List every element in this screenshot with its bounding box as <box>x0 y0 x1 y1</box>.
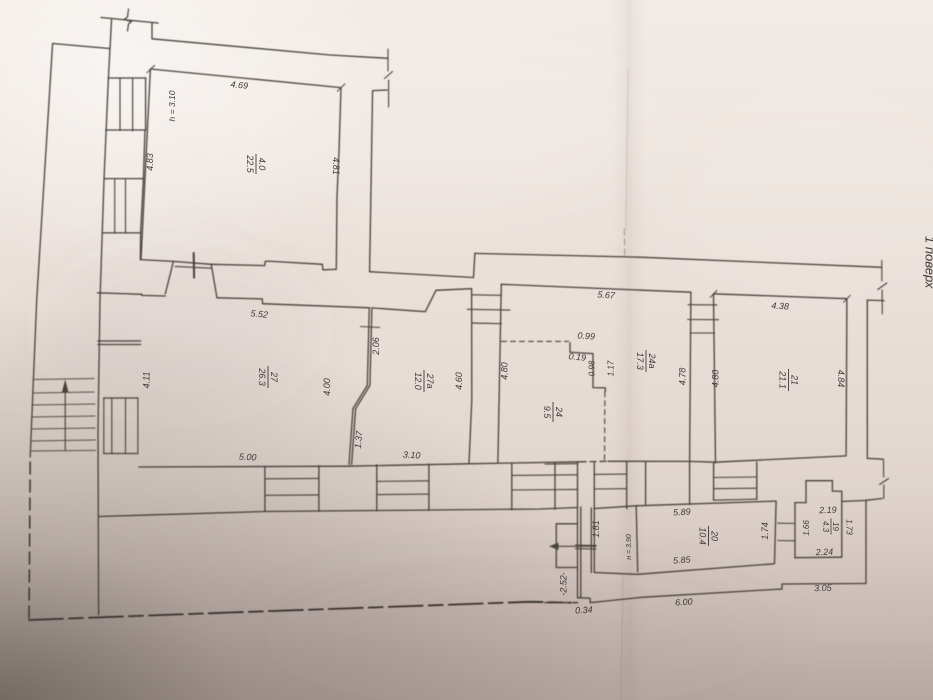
svg-text:6.00: 6.00 <box>675 596 693 607</box>
svg-text:1 поверх: 1 поверх <box>923 236 933 289</box>
svg-text:22.5: 22.5 <box>245 154 255 174</box>
svg-text:2.24: 2.24 <box>814 547 833 558</box>
svg-text:5.67: 5.67 <box>597 289 616 300</box>
svg-text:5.00: 5.00 <box>239 452 257 463</box>
svg-text:1.81: 1.81 <box>591 520 601 538</box>
svg-text:1.73: 1.73 <box>845 519 854 535</box>
svg-text:5.89: 5.89 <box>673 507 691 518</box>
svg-text:3.10: 3.10 <box>403 450 421 461</box>
svg-text:12.0: 12.0 <box>413 372 423 390</box>
svg-text:4.38: 4.38 <box>771 301 789 312</box>
svg-text:5.85: 5.85 <box>673 554 692 565</box>
svg-text:4.3: 4.3 <box>821 521 830 533</box>
svg-text:21: 21 <box>790 374 800 385</box>
svg-text:4.83: 4.83 <box>145 153 155 171</box>
svg-text:24: 24 <box>554 406 564 417</box>
svg-text:0.99: 0.99 <box>577 330 595 341</box>
svg-text:2.19: 2.19 <box>818 505 837 516</box>
svg-text:4.80: 4.80 <box>711 370 721 388</box>
svg-text:4.0: 4.0 <box>257 158 267 171</box>
svg-text:4.81: 4.81 <box>331 157 341 175</box>
svg-text:17.3: 17.3 <box>635 352 645 370</box>
svg-text:0.19: 0.19 <box>568 351 586 363</box>
svg-text:10.4: 10.4 <box>698 527 708 545</box>
svg-text:0.34: 0.34 <box>575 605 593 616</box>
svg-text:4.60: 4.60 <box>454 372 464 390</box>
svg-text:1.37: 1.37 <box>353 430 365 449</box>
svg-text:4.69: 4.69 <box>230 79 248 91</box>
svg-text:20: 20 <box>710 530 720 541</box>
svg-text:4.84: 4.84 <box>836 370 846 388</box>
svg-text:5.52: 5.52 <box>250 308 268 319</box>
svg-text:27: 27 <box>269 371 279 383</box>
svg-text:27a: 27a <box>425 372 435 388</box>
svg-text:н = 3.90: н = 3.90 <box>626 534 633 560</box>
svg-text:0.98: 0.98 <box>588 360 597 376</box>
svg-text:4.11: 4.11 <box>142 372 152 389</box>
svg-text:19: 19 <box>831 522 840 531</box>
svg-text:26.3: 26.3 <box>257 367 267 386</box>
svg-text:4.00: 4.00 <box>322 378 332 396</box>
svg-text:3.05: 3.05 <box>814 583 833 594</box>
svg-text:4.78: 4.78 <box>678 368 688 386</box>
svg-text:-2.52-: -2.52- <box>559 572 569 596</box>
svg-text:4.80: 4.80 <box>500 362 510 380</box>
svg-text:24a: 24a <box>647 352 657 368</box>
svg-text:1.66: 1.66 <box>802 520 811 536</box>
svg-text:2.06: 2.06 <box>371 337 381 356</box>
svg-text:21.1: 21.1 <box>778 370 788 389</box>
svg-text:1.17: 1.17 <box>607 360 616 376</box>
svg-text:h = 3.10: h = 3.10 <box>167 90 177 121</box>
svg-text:1.74: 1.74 <box>760 522 770 540</box>
svg-text:9.5: 9.5 <box>542 406 552 420</box>
